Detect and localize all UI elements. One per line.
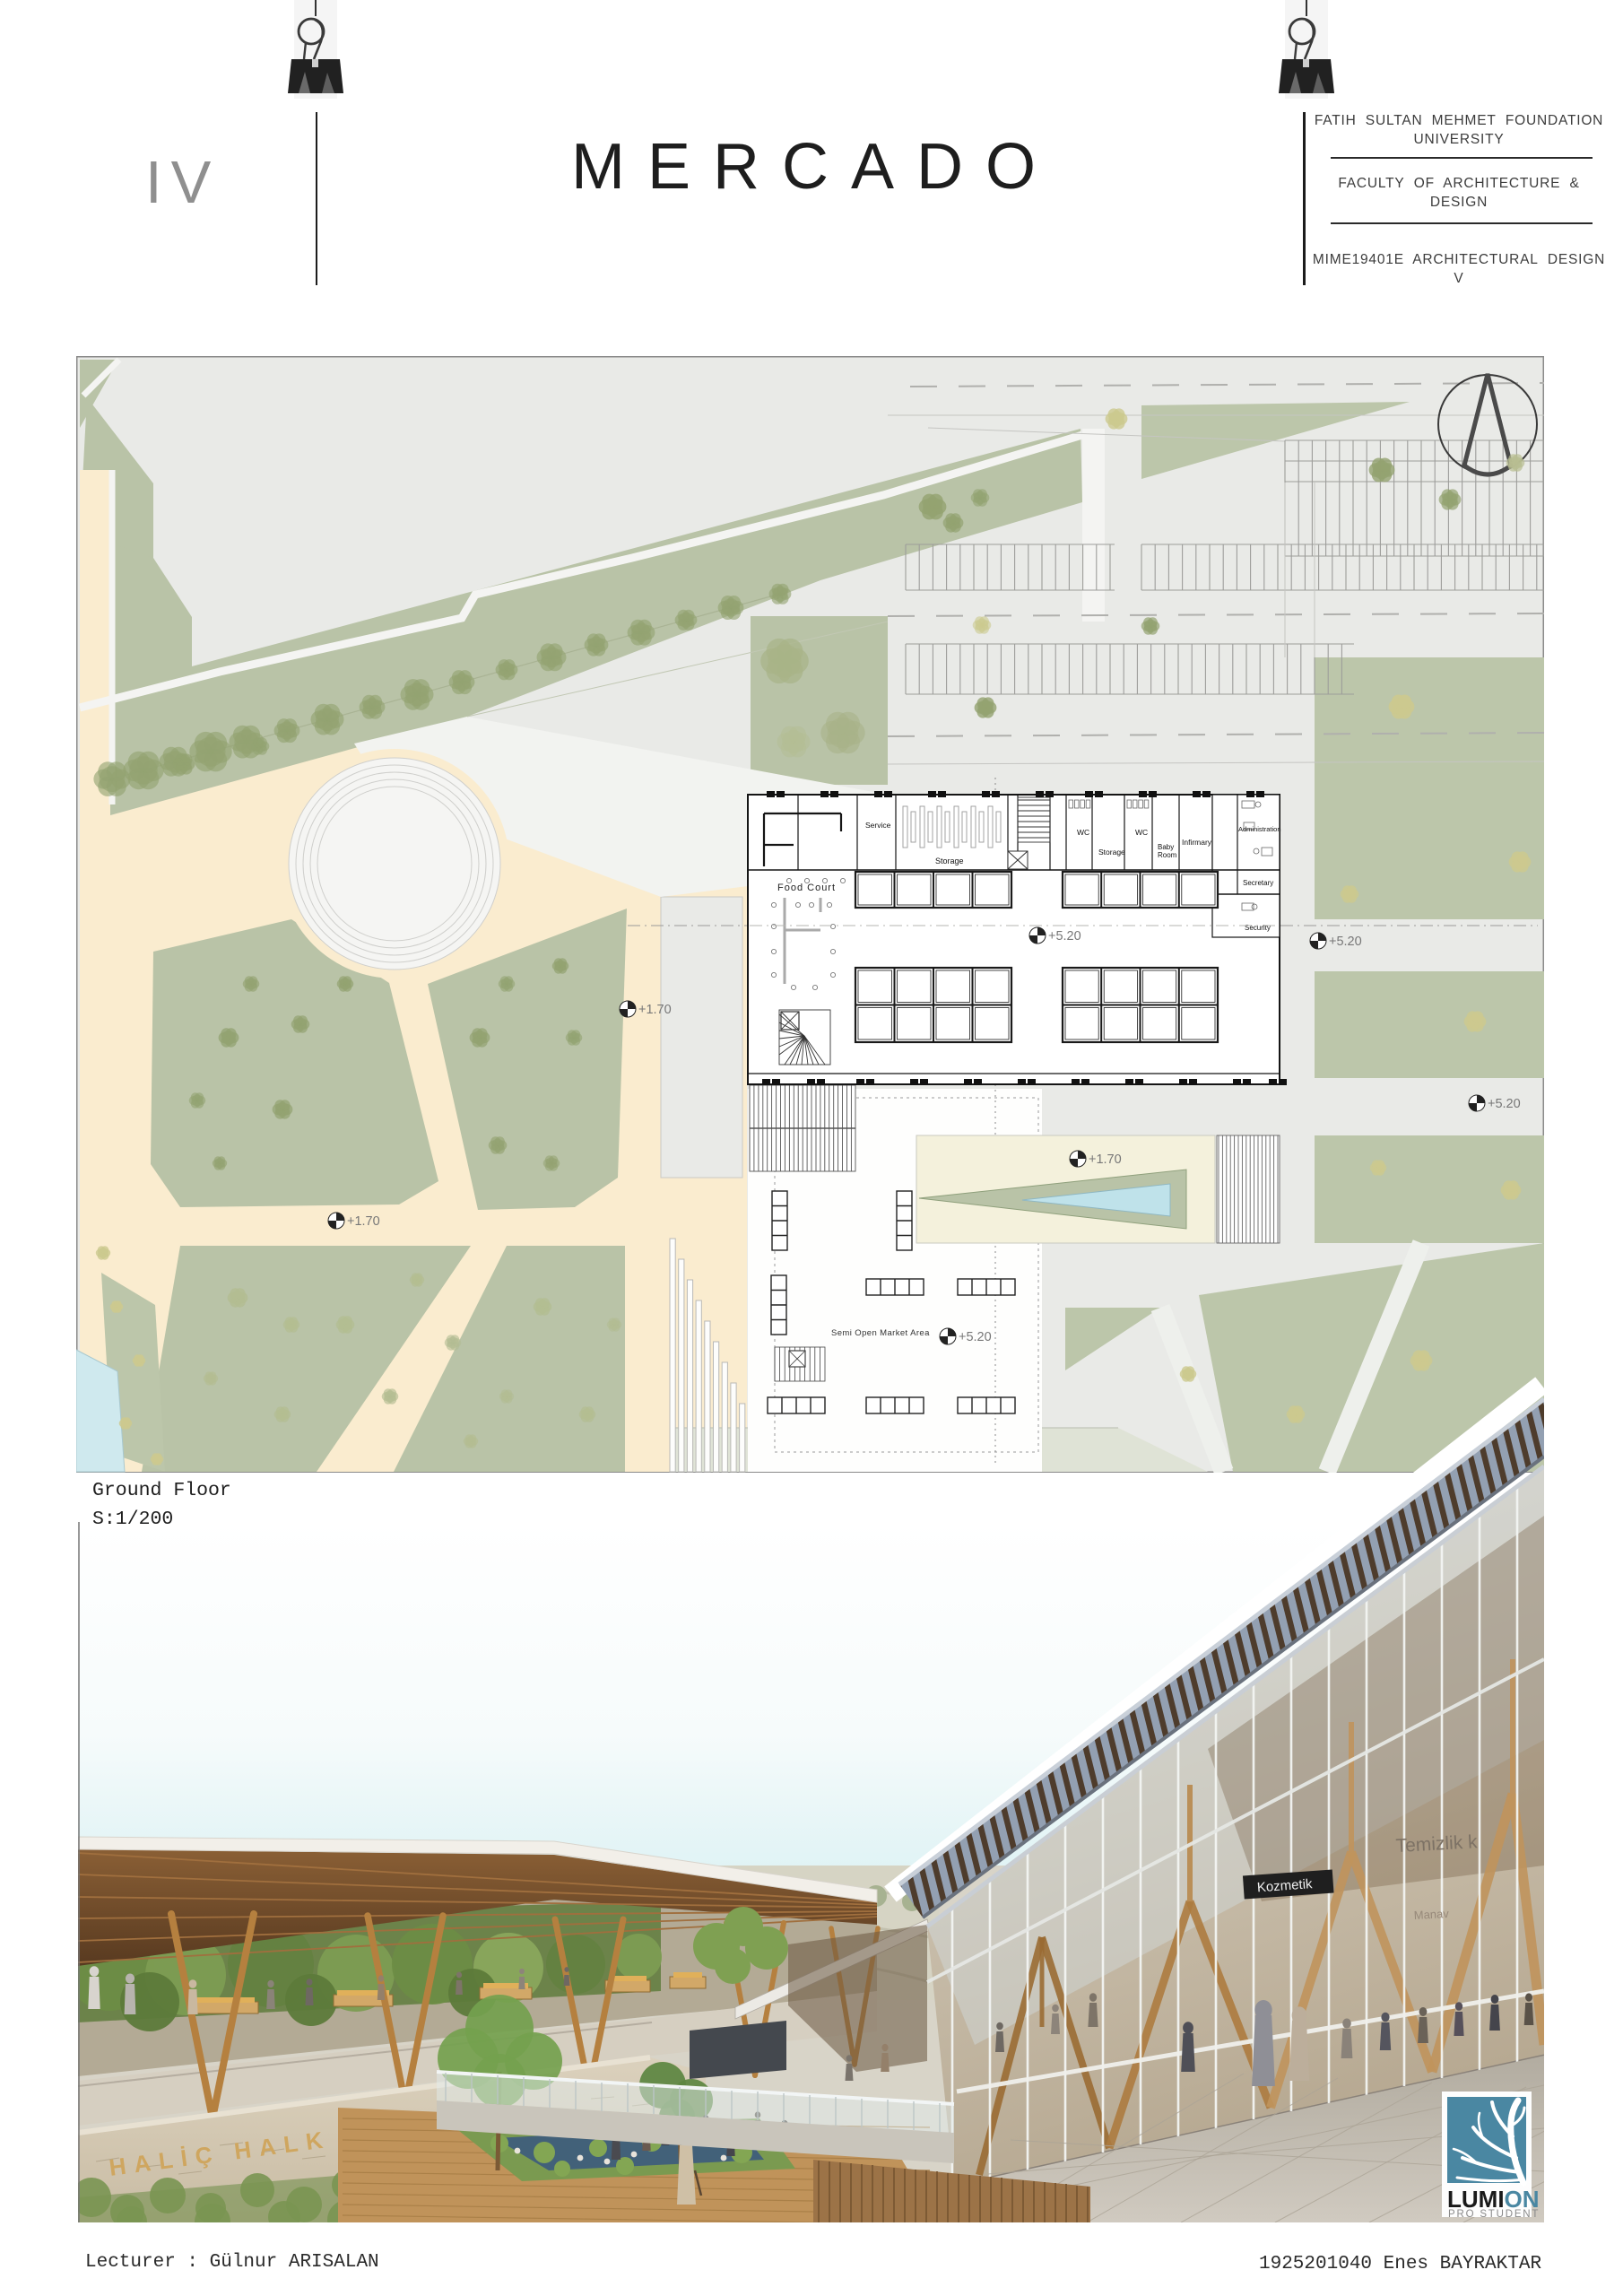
svg-text:Storage: Storage <box>1098 848 1125 857</box>
svg-text:PRO STUDENT: PRO STUDENT <box>1448 2209 1540 2220</box>
svg-text:Semi Open Market Area: Semi Open Market Area <box>831 1328 930 1338</box>
svg-text:Infirmary: Infirmary <box>1182 838 1212 847</box>
svg-text:Security: Security <box>1245 924 1271 932</box>
svg-text:+5.20: +5.20 <box>1329 935 1362 949</box>
svg-text:Storage: Storage <box>935 857 964 865</box>
svg-text:+5.20: +5.20 <box>1048 929 1081 944</box>
svg-text:Room: Room <box>1158 851 1177 859</box>
svg-text:Service: Service <box>865 821 891 830</box>
svg-text:Manav: Manav <box>1413 1907 1449 1922</box>
svg-text:WC: WC <box>1135 828 1148 837</box>
svg-text:WC: WC <box>1077 828 1089 837</box>
svg-text:+1.70: +1.70 <box>638 1003 672 1017</box>
svg-text:Food Court: Food Court <box>777 883 836 893</box>
svg-text:+5.20: +5.20 <box>1488 1097 1521 1111</box>
svg-text:Baby: Baby <box>1158 843 1174 851</box>
svg-text:+1.70: +1.70 <box>1089 1152 1122 1167</box>
svg-text:+5.20: +5.20 <box>959 1330 992 1344</box>
svg-text:Secretary: Secretary <box>1243 879 1273 887</box>
svg-text:+1.70: +1.70 <box>347 1214 380 1229</box>
svg-text:Administration: Administration <box>1238 825 1281 833</box>
svg-text:Temizlik k: Temizlik k <box>1395 1831 1479 1857</box>
